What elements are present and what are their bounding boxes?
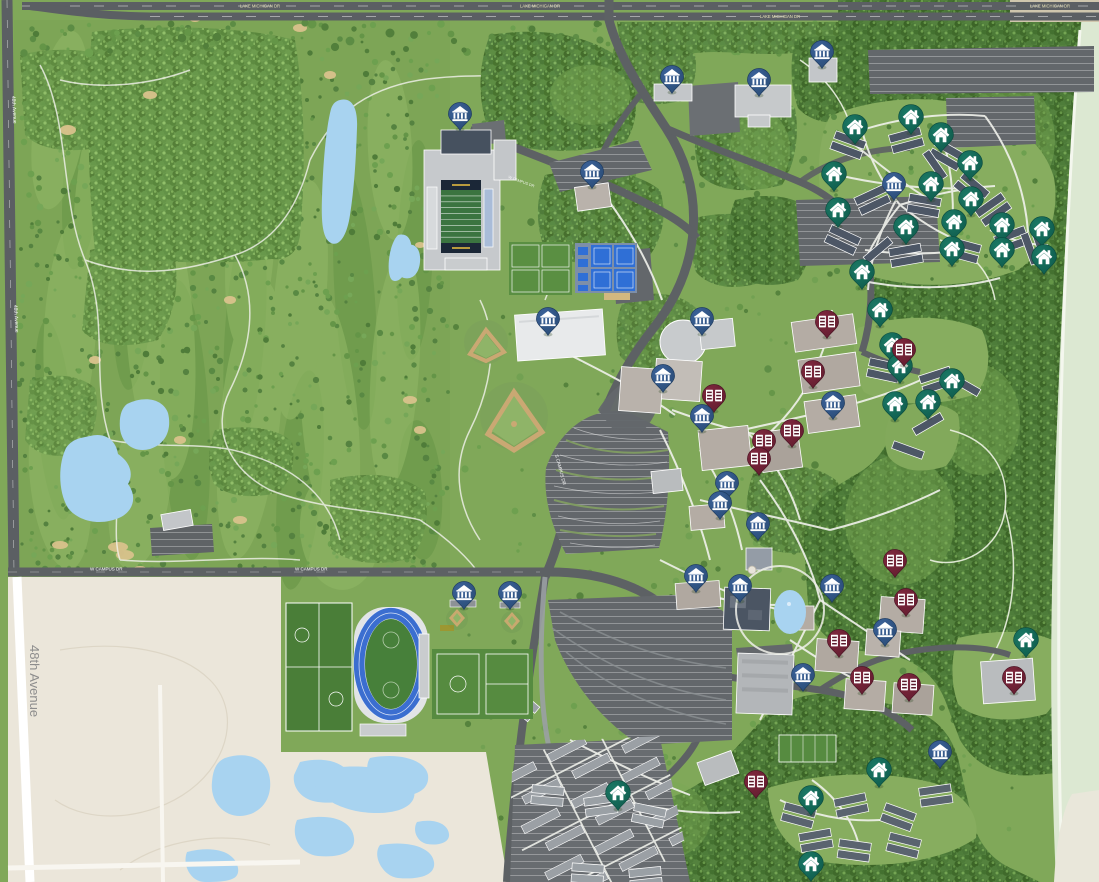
svg-text:48th Avenue: 48th Avenue bbox=[27, 645, 42, 717]
svg-text:LAKE MICHIGAN DR: LAKE MICHIGAN DR bbox=[520, 4, 560, 9]
svg-text:W CAMPUS DR: W CAMPUS DR bbox=[295, 567, 328, 572]
svg-text:W CAMPUS DR: W CAMPUS DR bbox=[90, 567, 123, 572]
svg-text:LAKE MICHIGAN DR: LAKE MICHIGAN DR bbox=[760, 14, 800, 19]
svg-text:LAKE MICHIGAN DR: LAKE MICHIGAN DR bbox=[1030, 4, 1070, 9]
svg-text:LAKE MICHIGAN DR: LAKE MICHIGAN DR bbox=[240, 4, 280, 9]
